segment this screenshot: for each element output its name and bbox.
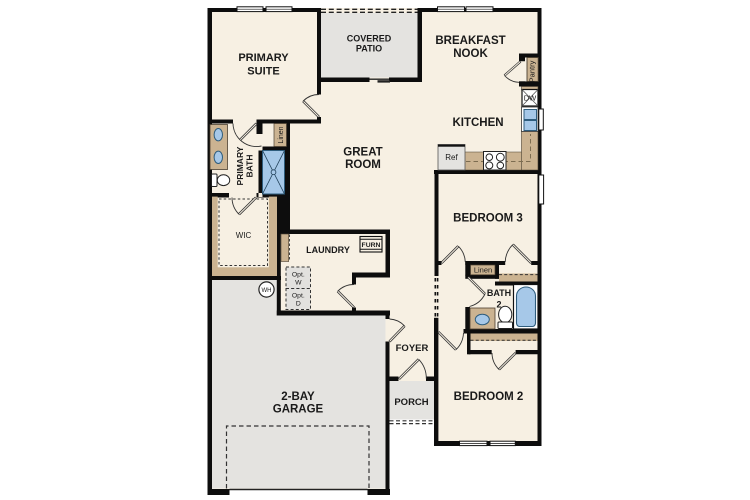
svg-text:2: 2 bbox=[496, 300, 501, 310]
svg-text:PATIO: PATIO bbox=[356, 44, 382, 54]
svg-text:GREAT: GREAT bbox=[343, 147, 382, 159]
svg-text:Pantry: Pantry bbox=[528, 60, 537, 82]
svg-text:WH: WH bbox=[262, 288, 272, 294]
svg-text:2-BAY: 2-BAY bbox=[281, 391, 315, 403]
svg-text:FOYER: FOYER bbox=[396, 343, 429, 354]
svg-text:BATH: BATH bbox=[245, 155, 255, 178]
svg-text:NOOK: NOOK bbox=[453, 48, 488, 60]
svg-text:COVERED: COVERED bbox=[347, 34, 392, 44]
svg-text:WIC: WIC bbox=[236, 231, 252, 240]
svg-text:Ref: Ref bbox=[445, 153, 458, 162]
svg-text:BATH: BATH bbox=[487, 288, 511, 298]
svg-text:Linen: Linen bbox=[474, 266, 492, 275]
svg-text:PORCH: PORCH bbox=[394, 397, 428, 408]
svg-text:SUITE: SUITE bbox=[247, 66, 279, 78]
svg-text:Opt.: Opt. bbox=[292, 272, 305, 279]
svg-text:ROOM: ROOM bbox=[345, 159, 381, 171]
svg-text:PRIMARY: PRIMARY bbox=[235, 146, 245, 185]
svg-text:D: D bbox=[296, 301, 301, 308]
svg-text:GARAGE: GARAGE bbox=[273, 404, 324, 416]
svg-text:KITCHEN: KITCHEN bbox=[452, 117, 503, 129]
svg-text:Opt.: Opt. bbox=[292, 293, 305, 300]
svg-text:BEDROOM 3: BEDROOM 3 bbox=[453, 213, 523, 225]
svg-text:BREAKFAST: BREAKFAST bbox=[435, 35, 505, 47]
svg-text:FURN: FURN bbox=[362, 242, 381, 249]
svg-text:Linen: Linen bbox=[278, 126, 285, 143]
svg-text:W: W bbox=[295, 280, 302, 287]
svg-text:DW: DW bbox=[524, 94, 537, 103]
svg-text:PRIMARY: PRIMARY bbox=[238, 52, 289, 64]
svg-text:BEDROOM 2: BEDROOM 2 bbox=[454, 391, 524, 403]
svg-text:LAUNDRY: LAUNDRY bbox=[306, 245, 350, 255]
